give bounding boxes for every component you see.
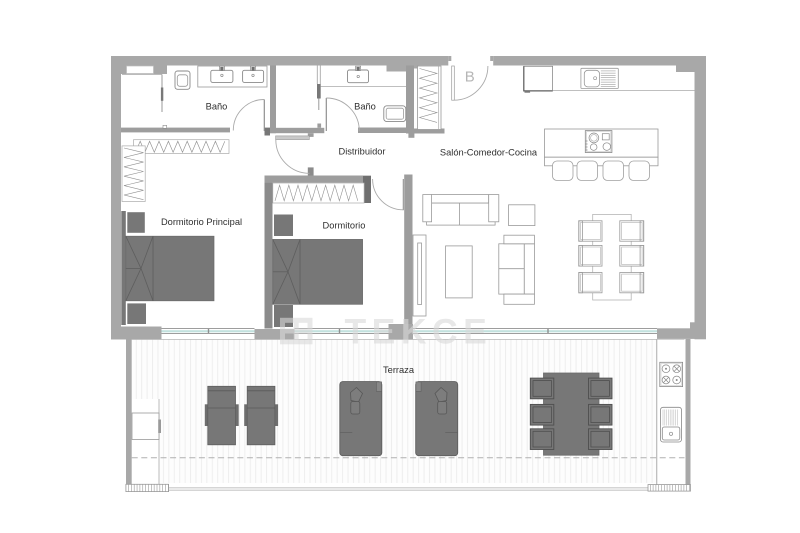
svg-text:Baño: Baño xyxy=(206,102,228,112)
svg-text:Dormitorio Principal: Dormitorio Principal xyxy=(161,217,242,227)
svg-text:Baño: Baño xyxy=(354,102,376,112)
svg-text:Salón-Comedor-Cocina: Salón-Comedor-Cocina xyxy=(440,148,538,158)
svg-text:TEKCE: TEKCE xyxy=(345,312,493,352)
svg-text:Distribuidor: Distribuidor xyxy=(338,147,385,157)
svg-text:B: B xyxy=(465,69,475,86)
svg-text:Dormitorio: Dormitorio xyxy=(323,221,366,231)
svg-text:Terraza: Terraza xyxy=(383,365,415,375)
